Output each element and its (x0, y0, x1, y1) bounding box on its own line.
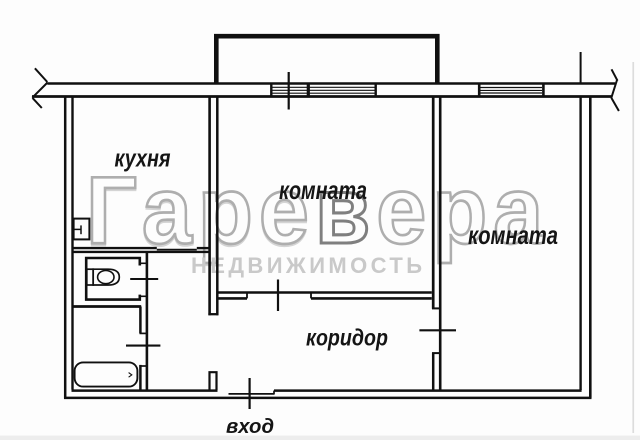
svg-text:вход: вход (226, 416, 274, 438)
svg-text:комната: комната (468, 220, 558, 250)
svg-text:комната: комната (279, 175, 367, 205)
svg-text:коридор: коридор (306, 325, 388, 351)
svg-text:кухня: кухня (115, 146, 171, 173)
svg-text:НЕДВИЖИМОСТЬ: НЕДВИЖИМОСТЬ (191, 253, 425, 278)
